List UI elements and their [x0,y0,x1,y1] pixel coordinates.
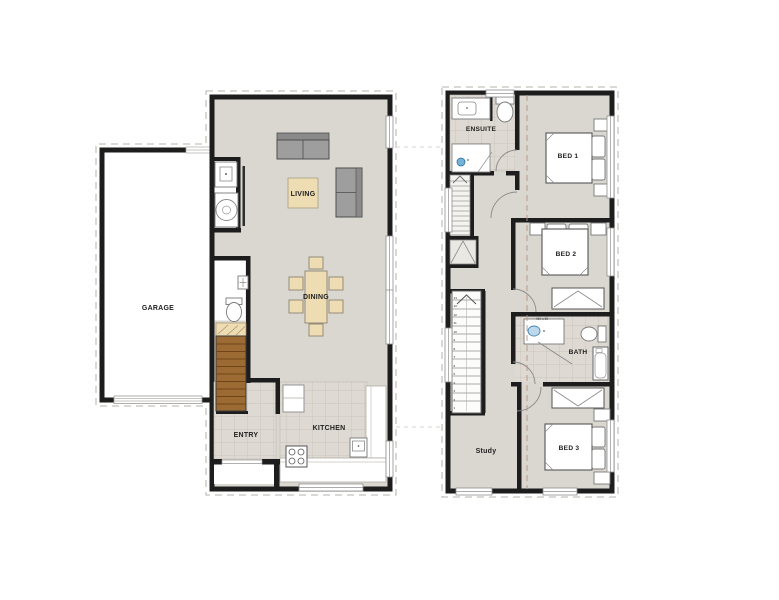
stair-number: 10 [454,330,458,334]
cooktop-icon [286,446,307,467]
label-entry: ENTRY [234,432,259,439]
ensuite-shower-icon [452,144,492,172]
label-study: Study [476,448,497,455]
label-living: LIVING [291,191,316,198]
washing-machine-icon [215,193,238,227]
kitchen-sink-icon [350,438,367,457]
bath-dimension-note: 460 x 60 [536,317,549,321]
fridge-space [283,385,304,412]
bed2-wardrobe [552,288,604,309]
sofa [277,133,329,159]
stair-number: 14 [454,296,458,300]
upper-stair-flight [450,175,470,235]
garage-room [102,147,212,404]
powder-basin-icon [238,276,248,289]
ground-stairs [216,323,246,411]
label-dining: DINING [303,294,329,301]
bath-toilet-icon [581,326,606,342]
porch [214,464,274,484]
label-ensuite: ENSUITE [466,126,497,133]
label-garage: GARAGE [142,305,174,312]
floorplan-canvas: GARAGE LIVING DINING ENTRY KITCHEN [0,0,779,600]
front-door [222,460,262,464]
ensuite-vanity-icon [452,98,490,119]
upper-floor-plan: 1 2 3 4 5 6 7 8 9 10 11 12 13 14 [442,87,618,497]
floorplan-page: GARAGE LIVING DINING ENTRY KITCHEN [0,0,779,600]
stair-number: 12 [454,313,458,317]
bathtub-icon [593,347,608,380]
garage-house-door [186,147,210,153]
label-bath: BATH [569,349,588,356]
laundry-tub-icon [215,162,237,187]
label-bed2: BED 2 [556,251,577,258]
bath-vanity-icon [524,319,564,344]
powder-room [215,261,249,322]
label-bed3: BED 3 [559,445,580,452]
ground-floor-plan: GARAGE LIVING DINING ENTRY KITCHEN [96,91,396,495]
bed3-wardrobe [552,388,604,408]
stair-number: 13 [454,304,458,308]
label-bed1: BED 1 [558,153,579,160]
media-unit [336,168,362,217]
main-stair-flight: 1 2 3 4 5 6 7 8 9 10 11 12 13 14 [452,291,481,413]
powder-toilet-icon [226,298,242,322]
ensuite-toilet-icon [496,97,514,122]
plan-tie-lines [396,147,441,427]
garage-door [114,396,202,404]
stair-number: 11 [454,321,458,325]
linen-closet [450,240,476,264]
laundry [215,161,239,227]
label-kitchen: KITCHEN [313,425,346,432]
